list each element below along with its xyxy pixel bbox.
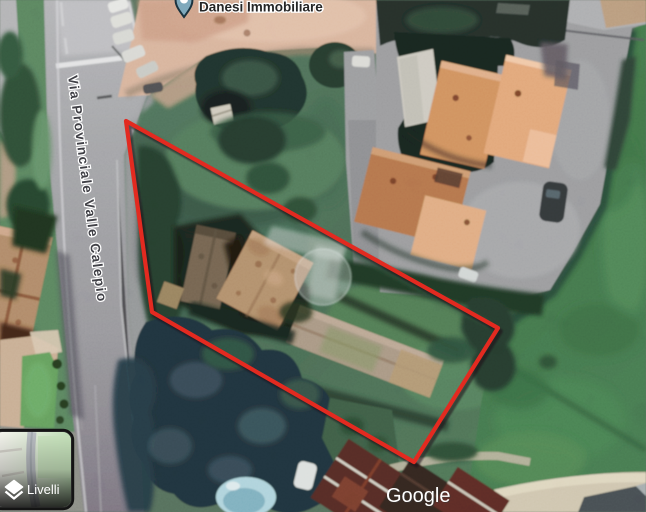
svg-text:Livelli: Livelli: [27, 482, 60, 497]
svg-text:Danesi Immobiliare: Danesi Immobiliare: [199, 0, 323, 15]
svg-text:Google: Google: [386, 485, 451, 507]
